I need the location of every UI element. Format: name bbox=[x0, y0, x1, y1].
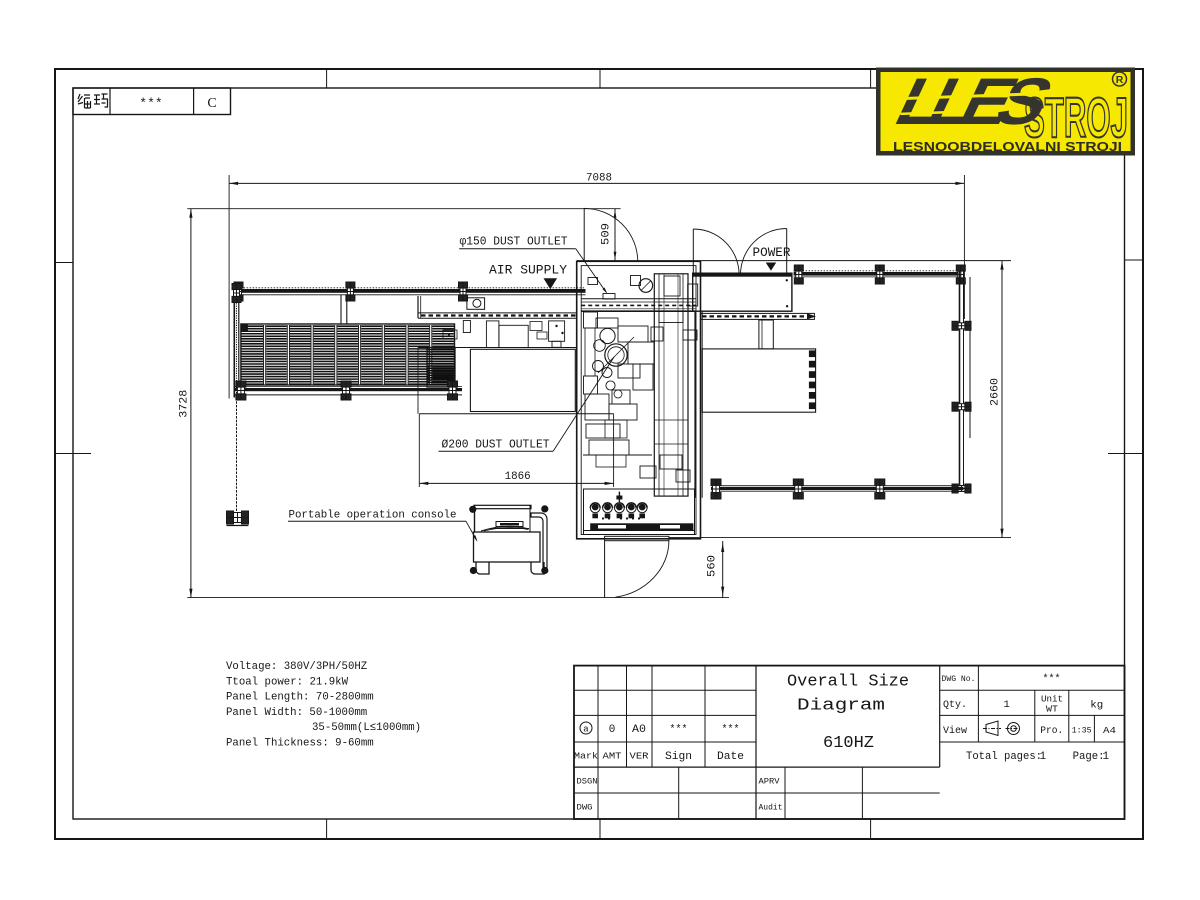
svg-text:35-50mm(L≤1000mm): 35-50mm(L≤1000mm) bbox=[312, 722, 421, 734]
svg-text:Mark: Mark bbox=[574, 751, 598, 762]
svg-text:2660: 2660 bbox=[990, 378, 1002, 406]
svg-text:a: a bbox=[583, 725, 589, 735]
svg-text:Pro.: Pro. bbox=[1040, 726, 1063, 737]
svg-text:POWER: POWER bbox=[753, 246, 791, 260]
svg-text:A4: A4 bbox=[1103, 725, 1116, 736]
svg-text:Unit: Unit bbox=[1041, 695, 1063, 705]
svg-text:1: 1 bbox=[1103, 751, 1110, 763]
svg-text:Total pages:: Total pages: bbox=[966, 751, 1042, 763]
svg-text:C: C bbox=[207, 96, 216, 111]
svg-text:WT: WT bbox=[1046, 705, 1059, 715]
svg-text:Portable operation console: Portable operation console bbox=[289, 510, 457, 522]
svg-text:1:35: 1:35 bbox=[1072, 726, 1092, 736]
svg-text:DWG No.: DWG No. bbox=[942, 674, 976, 684]
svg-text:AIR SUPPLY: AIR SUPPLY bbox=[489, 263, 567, 278]
svg-text:Panel Length: 70-2800mm: Panel Length: 70-2800mm bbox=[226, 692, 374, 704]
svg-text:1: 1 bbox=[1003, 699, 1009, 711]
svg-text:Ø200 DUST OUTLET: Ø200 DUST OUTLET bbox=[442, 438, 550, 452]
svg-text:φ150 DUST OUTLET: φ150 DUST OUTLET bbox=[460, 235, 568, 249]
svg-text:Panel Width: 50-1000mm: Panel Width: 50-1000mm bbox=[226, 707, 367, 719]
svg-text:Panel Thickness: 9-60mm: Panel Thickness: 9-60mm bbox=[226, 738, 374, 750]
svg-text:***: *** bbox=[1043, 674, 1061, 686]
svg-text:Diagram: Diagram bbox=[797, 697, 885, 716]
svg-text:509: 509 bbox=[601, 223, 613, 245]
svg-text:AMT: AMT bbox=[603, 751, 622, 762]
svg-text:Date: Date bbox=[717, 751, 744, 763]
svg-text:610HZ: 610HZ bbox=[823, 733, 874, 752]
svg-text:APRV: APRV bbox=[759, 777, 781, 787]
svg-text:A0: A0 bbox=[632, 724, 646, 736]
svg-text:Page:: Page: bbox=[1073, 751, 1105, 763]
svg-text:***: *** bbox=[670, 724, 688, 736]
svg-text:1866: 1866 bbox=[505, 471, 531, 483]
svg-text:kg: kg bbox=[1090, 700, 1103, 712]
svg-text:3728: 3728 bbox=[179, 390, 191, 418]
svg-text:DSGN: DSGN bbox=[577, 777, 598, 787]
svg-text:Audit: Audit bbox=[759, 803, 783, 813]
svg-text:Ttoal power: 21.9kW: Ttoal power: 21.9kW bbox=[226, 676, 348, 688]
svg-text:***: *** bbox=[722, 724, 740, 736]
svg-text:LESNOOBDELOVALNI STROJI: LESNOOBDELOVALNI STROJI bbox=[893, 139, 1122, 154]
svg-text:Overall Size: Overall Size bbox=[787, 673, 909, 692]
svg-text:R: R bbox=[1116, 74, 1124, 86]
svg-text:DWG: DWG bbox=[577, 803, 593, 813]
svg-text:View: View bbox=[943, 725, 967, 737]
svg-text:7088: 7088 bbox=[586, 173, 612, 185]
svg-text:***: *** bbox=[139, 96, 162, 111]
svg-text:1: 1 bbox=[1040, 751, 1047, 763]
svg-text:Voltage: 380V/3PH/50HZ: Voltage: 380V/3PH/50HZ bbox=[226, 661, 367, 673]
svg-text:Qty.: Qty. bbox=[943, 700, 967, 711]
svg-text:VER: VER bbox=[630, 751, 649, 762]
svg-text:560: 560 bbox=[707, 555, 719, 577]
svg-text:Sign: Sign bbox=[665, 751, 692, 763]
svg-text:0: 0 bbox=[609, 724, 616, 736]
